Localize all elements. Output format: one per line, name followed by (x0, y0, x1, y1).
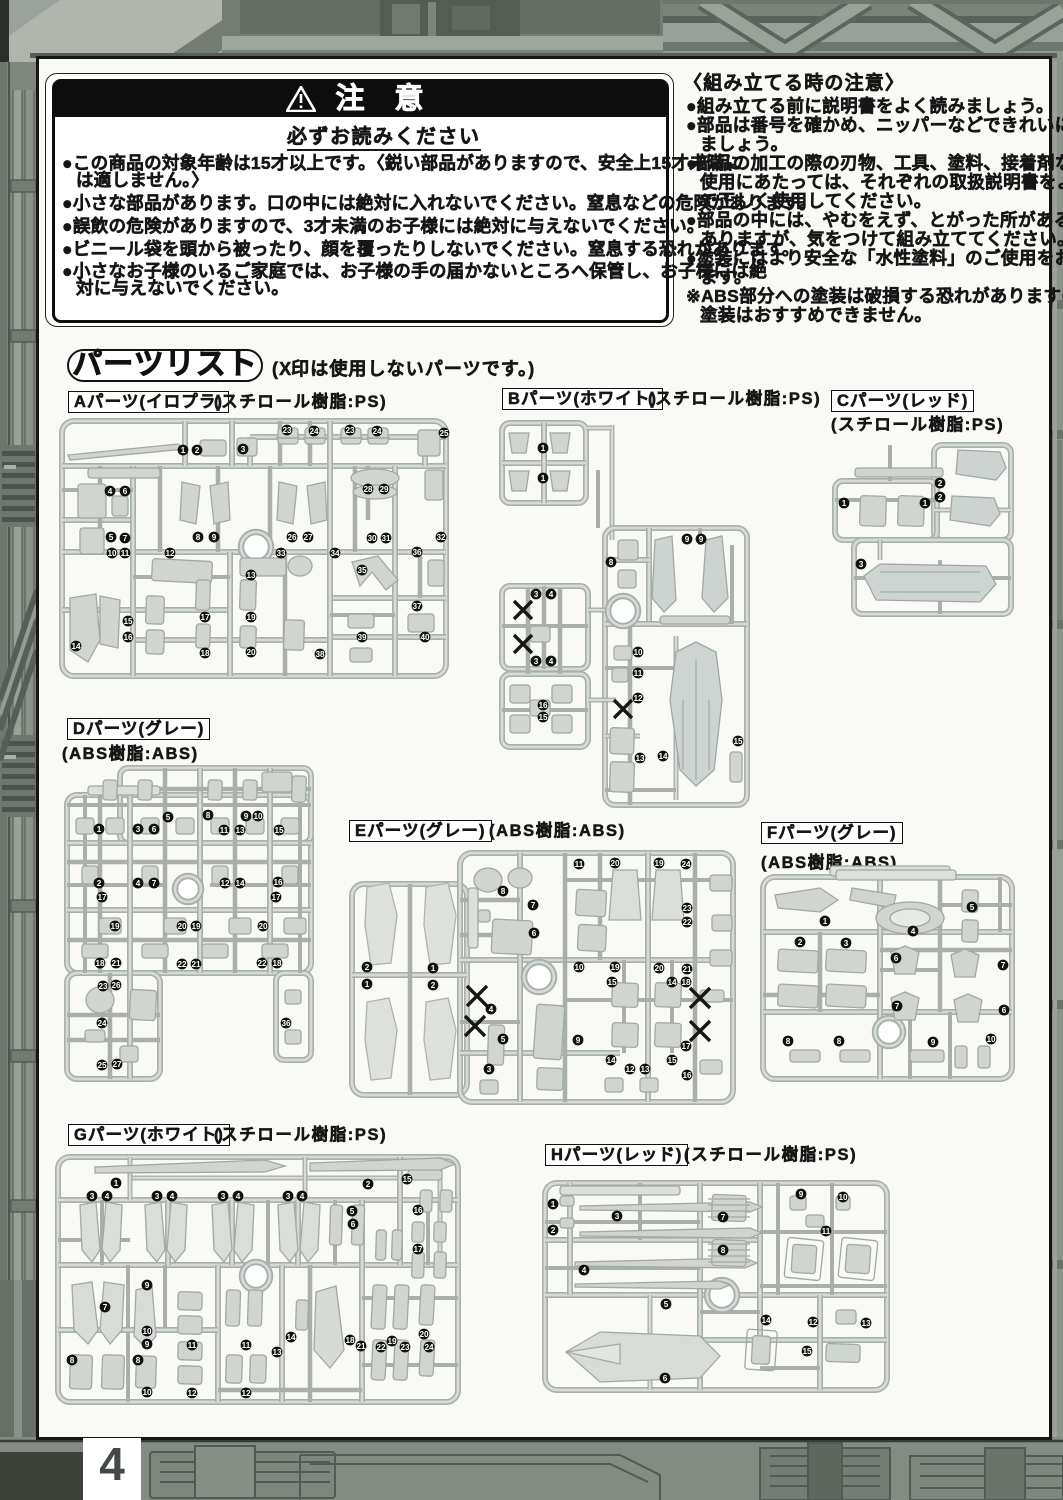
svg-text:7: 7 (721, 1213, 726, 1222)
svg-text:18: 18 (272, 959, 282, 968)
svg-text:24: 24 (309, 427, 319, 436)
svg-text:12: 12 (165, 549, 175, 558)
svg-text:12: 12 (220, 879, 230, 888)
svg-text:19: 19 (387, 1337, 397, 1346)
svg-text:15: 15 (802, 1347, 812, 1356)
svg-text:23: 23 (282, 426, 292, 435)
svg-text:18: 18 (95, 959, 105, 968)
svg-text:16: 16 (413, 1206, 423, 1215)
svg-text:22: 22 (257, 959, 267, 968)
svg-text:8: 8 (501, 887, 506, 896)
svg-text:25: 25 (439, 429, 449, 438)
svg-text:18: 18 (681, 978, 691, 987)
svg-text:4: 4 (582, 1266, 587, 1275)
svg-text:8: 8 (196, 533, 201, 542)
svg-text:17: 17 (97, 893, 107, 902)
svg-text:18: 18 (345, 1336, 355, 1345)
svg-text:16: 16 (682, 1071, 692, 1080)
svg-text:9: 9 (576, 1036, 581, 1045)
svg-text:2: 2 (938, 479, 943, 488)
svg-text:13: 13 (861, 1319, 871, 1328)
svg-text:1: 1 (541, 474, 546, 483)
svg-text:15: 15 (667, 1056, 677, 1065)
svg-text:3: 3 (534, 590, 539, 599)
svg-text:20: 20 (246, 648, 256, 657)
svg-text:4: 4 (300, 1192, 305, 1201)
svg-text:27: 27 (112, 1060, 122, 1069)
svg-text:28: 28 (363, 485, 373, 494)
svg-text:1: 1 (431, 964, 436, 973)
svg-text:2: 2 (431, 981, 436, 990)
svg-text:2: 2 (551, 1226, 556, 1235)
svg-text:23: 23 (400, 1343, 410, 1352)
svg-text:14: 14 (286, 1333, 296, 1342)
svg-text:4: 4 (489, 1005, 494, 1014)
svg-text:19: 19 (191, 922, 201, 931)
svg-text:15: 15 (538, 713, 548, 722)
svg-text:10: 10 (574, 963, 584, 972)
svg-text:3: 3 (155, 1192, 160, 1201)
svg-text:8: 8 (206, 811, 211, 820)
svg-text:4: 4 (549, 590, 554, 599)
svg-text:8: 8 (837, 1037, 842, 1046)
svg-text:1: 1 (365, 980, 370, 989)
svg-text:11: 11 (634, 669, 643, 678)
svg-text:27: 27 (303, 533, 313, 542)
svg-text:15: 15 (402, 1175, 412, 1184)
svg-text:34: 34 (330, 549, 340, 558)
svg-text:14: 14 (761, 1316, 771, 1325)
svg-text:20: 20 (419, 1330, 429, 1339)
svg-text:7: 7 (123, 534, 128, 543)
svg-text:3: 3 (286, 1192, 291, 1201)
svg-text:29: 29 (379, 485, 389, 494)
svg-text:1: 1 (923, 499, 928, 508)
svg-text:3: 3 (859, 560, 864, 569)
svg-text:19: 19 (610, 963, 620, 972)
svg-text:13: 13 (235, 826, 245, 835)
svg-text:2: 2 (798, 938, 803, 947)
svg-text:13: 13 (246, 571, 256, 580)
svg-text:1: 1 (541, 444, 546, 453)
svg-text:3: 3 (221, 1192, 226, 1201)
svg-text:2: 2 (195, 446, 200, 455)
svg-text:5: 5 (664, 1300, 669, 1309)
svg-text:23: 23 (682, 904, 692, 913)
svg-text:23: 23 (98, 982, 108, 991)
svg-text:7: 7 (103, 1303, 108, 1312)
svg-text:15: 15 (274, 826, 284, 835)
svg-text:14: 14 (71, 642, 81, 651)
svg-text:19: 19 (246, 613, 256, 622)
svg-text:10: 10 (633, 648, 643, 657)
svg-text:13: 13 (635, 754, 645, 763)
svg-text:7: 7 (895, 1002, 900, 1011)
svg-text:24: 24 (97, 1019, 107, 1028)
svg-text:19: 19 (110, 922, 120, 931)
svg-text:14: 14 (235, 879, 245, 888)
svg-text:12: 12 (625, 1065, 635, 1074)
svg-text:36: 36 (281, 1019, 291, 1028)
svg-text:18: 18 (200, 649, 210, 658)
svg-text:25: 25 (97, 1061, 107, 1070)
svg-text:26: 26 (287, 533, 297, 542)
svg-text:7: 7 (531, 901, 536, 910)
svg-text:24: 24 (681, 860, 691, 869)
svg-text:4: 4 (911, 927, 916, 936)
svg-text:1: 1 (114, 1179, 119, 1188)
svg-text:31: 31 (381, 534, 391, 543)
svg-text:22: 22 (682, 918, 692, 927)
svg-text:10: 10 (142, 1388, 152, 1397)
svg-text:6: 6 (663, 1374, 668, 1383)
svg-text:1: 1 (97, 825, 102, 834)
svg-text:20: 20 (258, 922, 268, 931)
svg-text:40: 40 (420, 633, 430, 642)
svg-text:8: 8 (136, 1356, 141, 1365)
svg-text:5: 5 (501, 1035, 506, 1044)
svg-text:3: 3 (90, 1192, 95, 1201)
svg-text:2: 2 (97, 879, 102, 888)
svg-text:37: 37 (412, 602, 422, 611)
svg-text:6: 6 (123, 487, 128, 496)
svg-text:20: 20 (177, 922, 187, 931)
svg-text:1: 1 (551, 1200, 556, 1209)
svg-text:22: 22 (376, 1343, 386, 1352)
svg-text:3: 3 (534, 657, 539, 666)
svg-text:9: 9 (244, 812, 249, 821)
svg-text:8: 8 (786, 1037, 791, 1046)
svg-text:17: 17 (200, 613, 210, 622)
svg-text:2: 2 (938, 493, 943, 502)
svg-text:9: 9 (799, 1190, 804, 1199)
svg-text:3: 3 (241, 445, 246, 454)
svg-text:4: 4 (108, 487, 113, 496)
svg-text:35: 35 (357, 566, 367, 575)
svg-text:7: 7 (152, 879, 157, 888)
svg-text:33: 33 (276, 549, 286, 558)
svg-text:14: 14 (667, 978, 677, 987)
svg-text:5: 5 (350, 1207, 355, 1216)
svg-text:12: 12 (633, 694, 643, 703)
svg-text:13: 13 (640, 1065, 650, 1074)
svg-text:3: 3 (615, 1212, 620, 1221)
svg-text:1: 1 (842, 499, 847, 508)
svg-text:39: 39 (357, 633, 367, 642)
svg-text:21: 21 (191, 960, 201, 969)
svg-text:12: 12 (808, 1318, 818, 1327)
svg-text:4: 4 (136, 879, 141, 888)
svg-text:14: 14 (606, 1056, 616, 1065)
svg-text:16: 16 (123, 633, 133, 642)
svg-text:7: 7 (1001, 961, 1006, 970)
svg-text:5: 5 (166, 813, 171, 822)
svg-text:6: 6 (1002, 1006, 1007, 1015)
svg-text:1: 1 (181, 446, 186, 455)
svg-text:30: 30 (367, 534, 377, 543)
svg-text:19: 19 (654, 859, 664, 868)
svg-text:10: 10 (107, 549, 117, 558)
svg-text:11: 11 (242, 1341, 251, 1350)
svg-text:10: 10 (986, 1035, 996, 1044)
svg-text:20: 20 (610, 859, 620, 868)
svg-text:4: 4 (549, 657, 554, 666)
svg-text:9: 9 (685, 535, 690, 544)
svg-text:11: 11 (220, 826, 229, 835)
svg-text:4: 4 (105, 1192, 110, 1201)
svg-text:11: 11 (575, 860, 584, 869)
svg-text:11: 11 (822, 1227, 831, 1236)
svg-text:15: 15 (123, 617, 133, 626)
svg-text:23: 23 (345, 426, 355, 435)
svg-text:5: 5 (109, 533, 114, 542)
svg-text:38: 38 (315, 650, 325, 659)
svg-text:4: 4 (236, 1192, 241, 1201)
svg-text:21: 21 (356, 1342, 366, 1351)
svg-text:17: 17 (271, 893, 281, 902)
svg-text:12: 12 (241, 1389, 251, 1398)
svg-text:3: 3 (136, 825, 141, 834)
svg-text:6: 6 (532, 929, 537, 938)
svg-text:2: 2 (365, 963, 370, 972)
svg-text:21: 21 (682, 965, 692, 974)
svg-text:9: 9 (931, 1038, 936, 1047)
svg-text:11: 11 (121, 549, 130, 558)
svg-text:22: 22 (177, 960, 187, 969)
svg-text:6: 6 (351, 1220, 356, 1229)
svg-text:10: 10 (142, 1327, 152, 1336)
svg-text:15: 15 (733, 737, 743, 746)
svg-text:16: 16 (273, 878, 283, 887)
svg-text:1: 1 (823, 917, 828, 926)
svg-text:6: 6 (152, 825, 157, 834)
svg-text:9: 9 (145, 1281, 150, 1290)
svg-text:9: 9 (145, 1340, 150, 1349)
svg-text:8: 8 (721, 1246, 726, 1255)
svg-text:14: 14 (658, 752, 668, 761)
svg-text:17: 17 (681, 1042, 691, 1051)
svg-text:2: 2 (366, 1180, 371, 1189)
svg-text:3: 3 (844, 939, 849, 948)
svg-text:11: 11 (188, 1341, 197, 1350)
svg-text:17: 17 (413, 1245, 423, 1254)
svg-text:24: 24 (372, 427, 382, 436)
svg-text:26: 26 (111, 981, 121, 990)
svg-text:4: 4 (170, 1192, 175, 1201)
svg-text:9: 9 (212, 533, 217, 542)
svg-text:32: 32 (436, 533, 446, 542)
svg-text:24: 24 (424, 1343, 434, 1352)
svg-text:8: 8 (70, 1356, 75, 1365)
svg-text:21: 21 (111, 959, 121, 968)
svg-text:12: 12 (187, 1389, 197, 1398)
svg-text:20: 20 (654, 964, 664, 973)
svg-text:10: 10 (838, 1193, 848, 1202)
svg-text:5: 5 (970, 903, 975, 912)
svg-text:16: 16 (538, 701, 548, 710)
svg-text:8: 8 (609, 558, 614, 567)
svg-text:9: 9 (699, 535, 704, 544)
svg-text:36: 36 (412, 548, 422, 557)
svg-text:15: 15 (607, 978, 617, 987)
svg-text:10: 10 (253, 812, 263, 821)
svg-text:13: 13 (272, 1348, 282, 1357)
svg-text:6: 6 (894, 954, 899, 963)
svg-text:3: 3 (487, 1065, 492, 1074)
